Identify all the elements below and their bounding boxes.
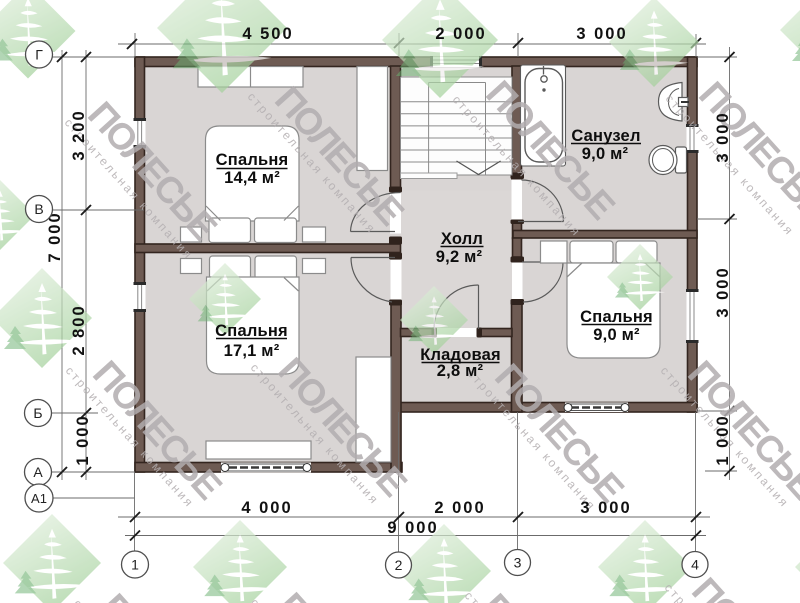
- svg-text:17,1 м²: 17,1 м²: [224, 342, 280, 360]
- svg-text:Спальня: Спальня: [215, 322, 288, 340]
- svg-text:9,0 м²: 9,0 м²: [593, 326, 640, 344]
- svg-text:Санузел: Санузел: [571, 127, 640, 145]
- svg-text:2 000: 2 000: [435, 25, 486, 43]
- svg-text:Холл: Холл: [441, 230, 483, 248]
- svg-text:А: А: [33, 464, 43, 480]
- svg-text:14,4 м²: 14,4 м²: [224, 169, 280, 187]
- svg-text:3 000: 3 000: [714, 266, 732, 317]
- svg-text:2: 2: [395, 557, 403, 573]
- svg-text:9 000: 9 000: [387, 519, 438, 537]
- svg-text:2 800: 2 800: [70, 304, 88, 355]
- svg-text:В: В: [34, 201, 43, 217]
- svg-text:Спальня: Спальня: [580, 308, 653, 326]
- svg-text:4 000: 4 000: [241, 499, 292, 517]
- svg-text:Спальня: Спальня: [216, 151, 289, 169]
- svg-text:3: 3: [514, 555, 522, 571]
- svg-text:3 200: 3 200: [70, 109, 88, 160]
- svg-text:4: 4: [691, 557, 699, 573]
- svg-text:2,8 м²: 2,8 м²: [437, 362, 484, 380]
- svg-text:1 000: 1 000: [714, 414, 732, 465]
- svg-text:1 000: 1 000: [74, 414, 92, 465]
- svg-text:2 000: 2 000: [434, 499, 485, 517]
- svg-text:3 000: 3 000: [576, 25, 627, 43]
- svg-text:1: 1: [131, 557, 139, 573]
- svg-text:4 500: 4 500: [242, 25, 293, 43]
- svg-text:А1: А1: [31, 491, 47, 506]
- svg-text:3 000: 3 000: [714, 111, 732, 162]
- svg-text:9,2 м²: 9,2 м²: [436, 248, 483, 266]
- svg-text:9,0 м²: 9,0 м²: [582, 145, 629, 163]
- svg-text:Г: Г: [35, 47, 43, 63]
- svg-text:3 000: 3 000: [580, 499, 631, 517]
- svg-text:Б: Б: [33, 405, 42, 421]
